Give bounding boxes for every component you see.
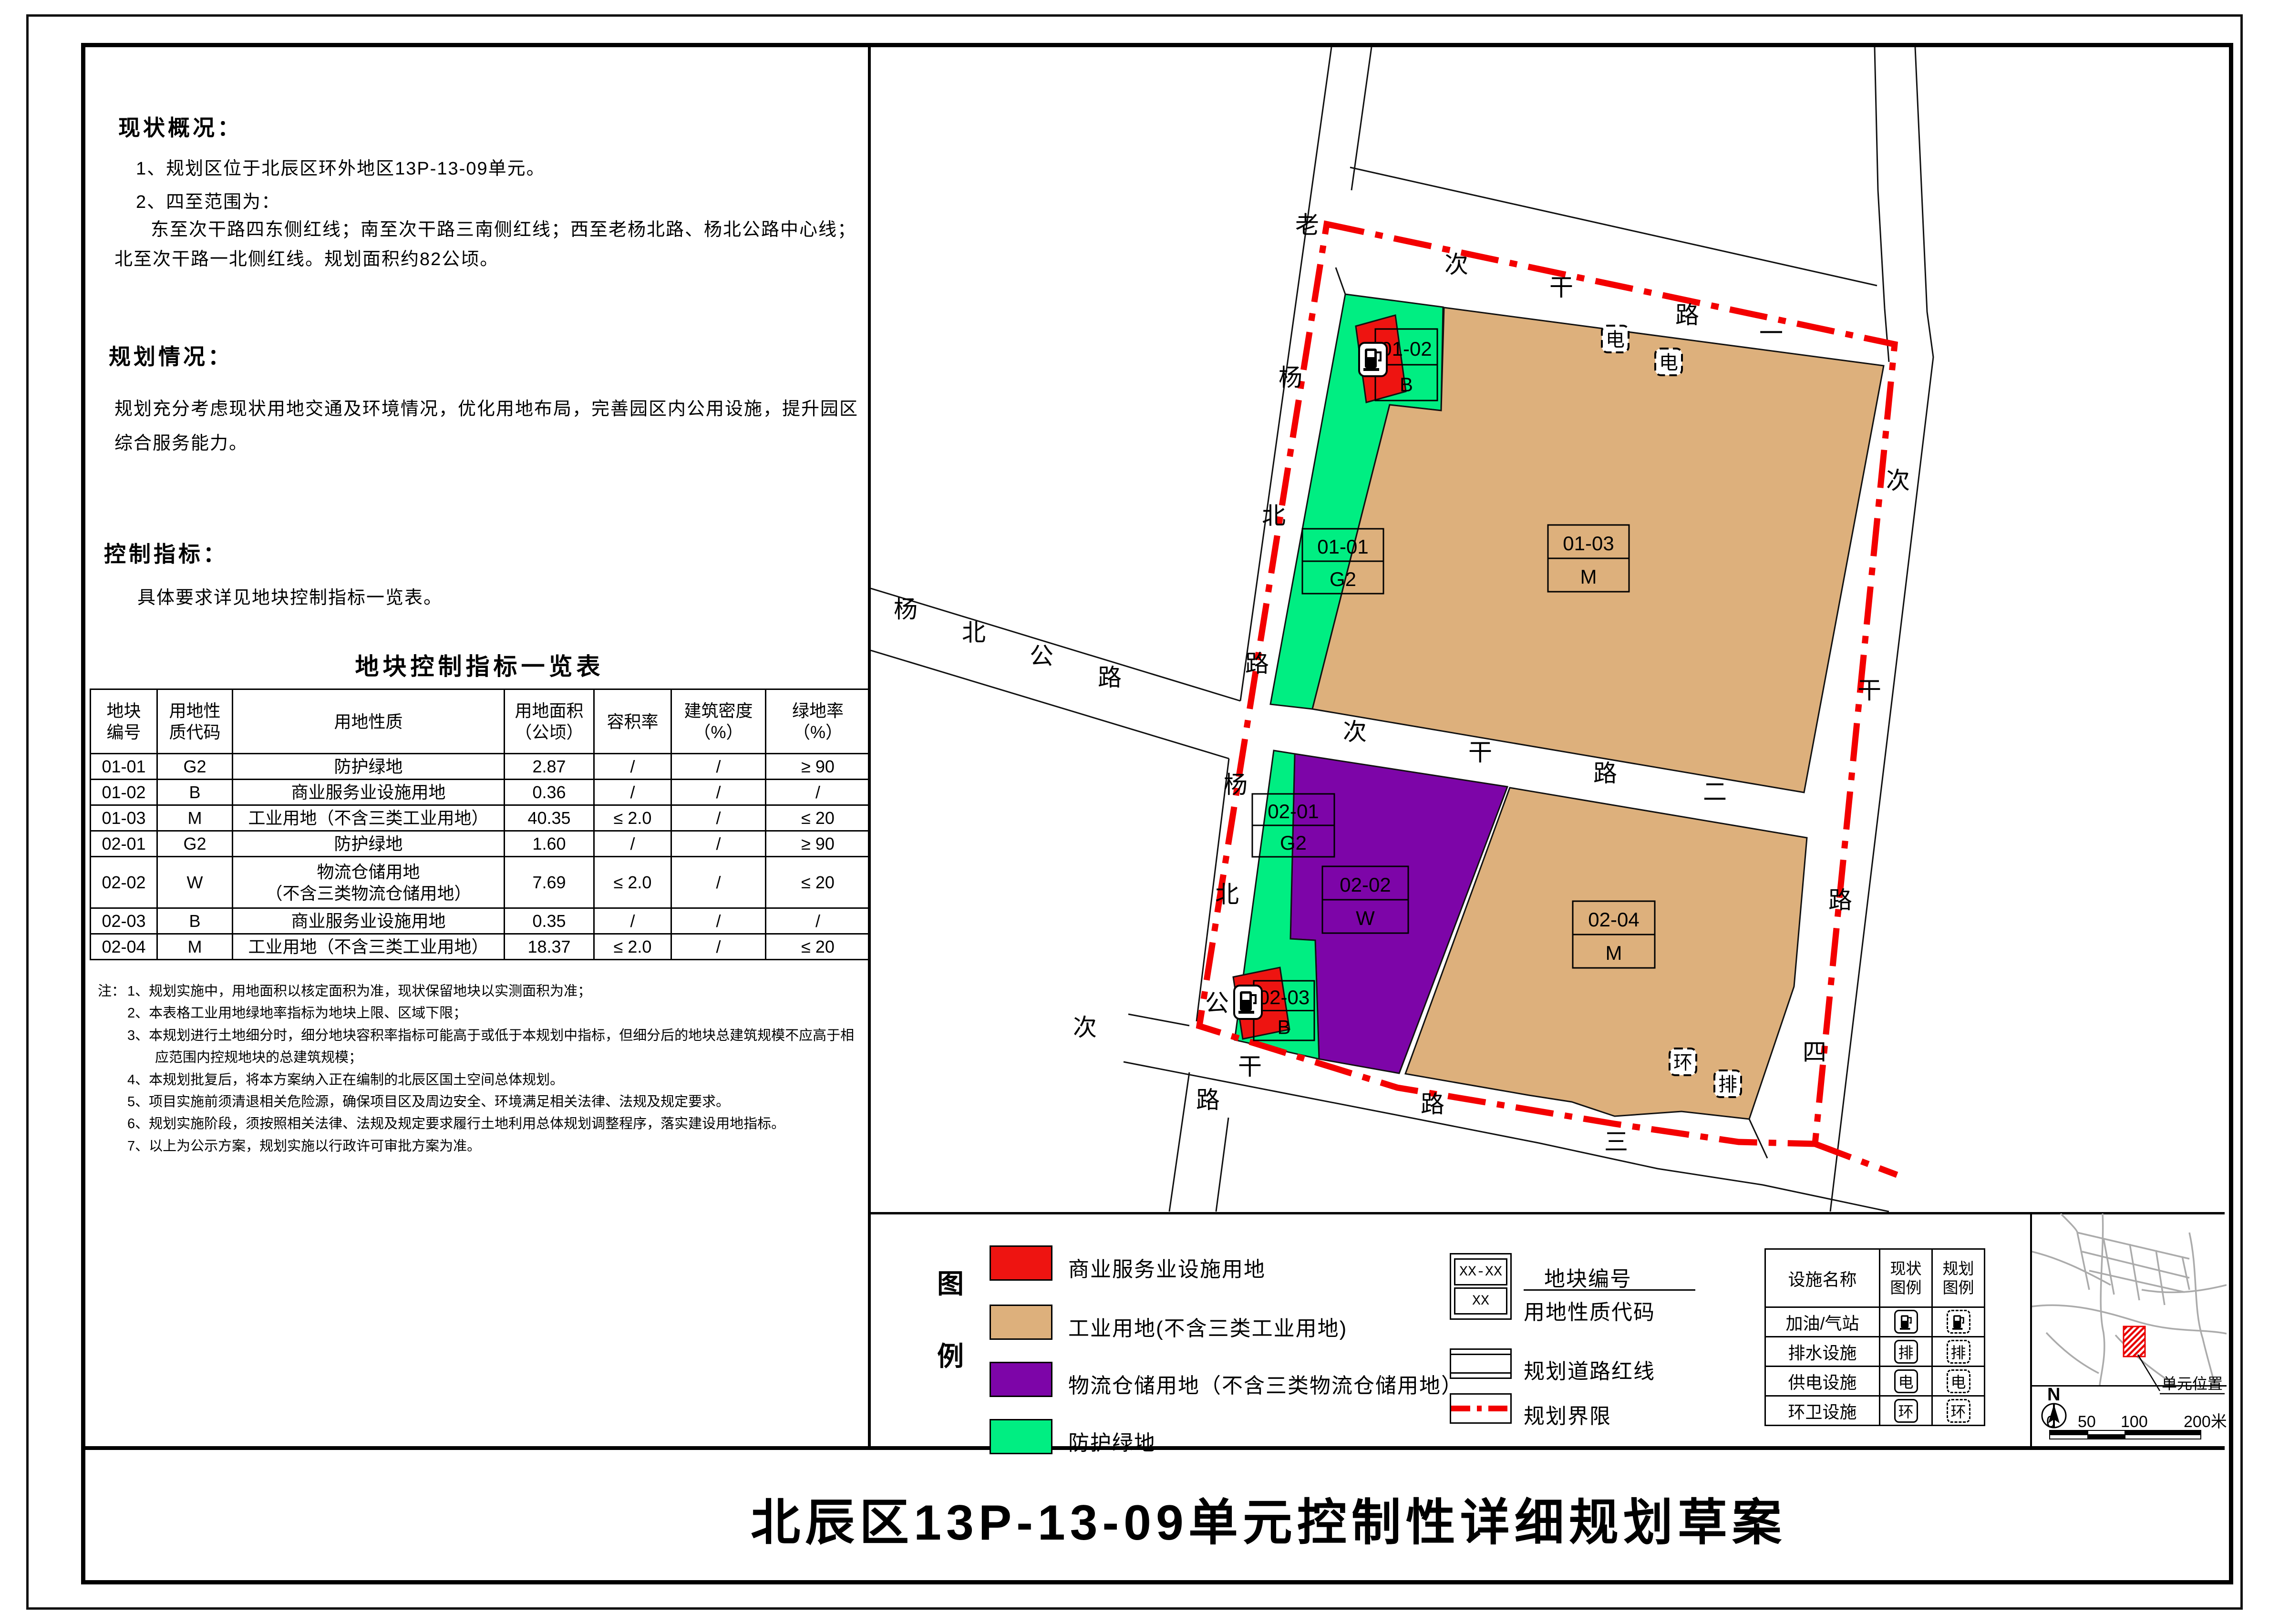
status-heading: 现状概况： <box>118 111 242 142</box>
scale-bar <box>2050 1430 2201 1439</box>
svg-text:M: M <box>1606 942 1622 964</box>
table-header-col6: 建筑密度 （%） <box>671 689 766 754</box>
svg-text:B: B <box>1277 1016 1290 1038</box>
status-item-2: 2、四至范围为： <box>136 187 280 213</box>
svg-text:M: M <box>1580 565 1597 588</box>
road-redline-swatch <box>1450 1348 1512 1379</box>
table-header-col7: 绿地率 （%） <box>766 689 870 754</box>
legend-swatch-green <box>990 1419 1052 1454</box>
svg-text:W: W <box>1356 907 1375 929</box>
table-row-01-02: 01-02B商业服务业设施用地0.36/// <box>91 780 870 805</box>
inset-svg: 单元位置 N 050100200米 <box>2032 1213 2227 1447</box>
road-name-yangbei_south-char3: 公 <box>1205 990 1229 1017</box>
road-name-road4-char1: 次 <box>1886 467 1910 494</box>
facility-电-icon-planned: 电 <box>1602 326 1629 352</box>
parcel-code-label: 地块编号 <box>1544 1262 1632 1292</box>
facility-电-icon-planned: 电 <box>1947 1369 1970 1393</box>
table-row-01-01: 01-01G2防护绿地2.87//≥ 90 <box>91 754 870 780</box>
notes-block: 注： 1、规划实施中，用地面积以核定面积为准，现状保留地块以实测面积为准；2、本… <box>98 980 866 1157</box>
road-name-road1-char4: 一 <box>1759 320 1783 347</box>
table-row-02-01: 02-01G2防护绿地1.60//≥ 90 <box>91 831 870 857</box>
road-name-yangbei_diag-char2: 北 <box>962 619 986 646</box>
road-name-laoyang-char3: 北 <box>1262 503 1286 529</box>
svg-text:G2: G2 <box>1280 832 1307 854</box>
sheet-title: 北辰区13P-13-09单元控制性详细规划草案 <box>751 1482 1786 1554</box>
road-name-road2-char3: 路 <box>1593 760 1617 787</box>
svg-text:环: 环 <box>1673 1052 1692 1073</box>
note-item-4: 4、本规划批复后，将本方案纳入正在编制的北辰区国土空间总体规划。 <box>127 1069 866 1091</box>
road-name-yangbei_south-char1: 杨 <box>1224 771 1248 798</box>
road-name-yangbei_diag-char3: 公 <box>1030 643 1053 669</box>
facilities-row: 排水设施排排 <box>1765 1337 1985 1367</box>
facility-排-icon-planned: 排 <box>1947 1340 1970 1364</box>
table-row-02-03: 02-03B商业服务业设施用地0.35/// <box>91 908 870 934</box>
fuel-pump-icon-existing <box>1359 343 1387 376</box>
boundary-swatch <box>1450 1393 1512 1424</box>
scale-bar-labels: 050100200米 <box>2046 1413 2227 1431</box>
legend-label-industrial: 工业用地(不含三类工业用地) <box>1068 1311 1347 1342</box>
facilities-header-2: 现状 图例 <box>1880 1249 1932 1307</box>
svg-text:01-01: 01-01 <box>1317 535 1368 558</box>
facility-排-icon-planned: 排 <box>1714 1070 1741 1097</box>
note-item-7: 7、以上为公示方案，规划实施以行政许可审批方案为准。 <box>127 1135 866 1157</box>
road-name-road3-char3: 路 <box>1421 1091 1444 1118</box>
table-row-01-03: 01-03M工业用地（不含三类工业用地）40.35≤ 2.0/≤ 20 <box>91 805 870 831</box>
road-name-yangbei_south-char4: 路 <box>1196 1087 1220 1113</box>
north-label: N <box>2047 1385 2060 1405</box>
facility-环-icon-planned: 环 <box>1947 1399 1970 1423</box>
table-header-col1: 地块 编号 <box>91 689 157 754</box>
road-redline-label: 规划道路红线 <box>1524 1354 1655 1385</box>
legend-title-char-2: 例 <box>937 1335 964 1374</box>
notes-prefix: 注： <box>98 980 125 1002</box>
road-name-road1-char2: 干 <box>1549 274 1573 301</box>
table-header-col3: 用地性质 <box>233 689 505 754</box>
svg-text:02-02: 02-02 <box>1340 874 1391 896</box>
plan-sheet: 现状概况： 1、规划区位于北辰区环外地区13P-13-09单元。 2、四至范围为… <box>0 0 2269 1624</box>
svg-text:02-01: 02-01 <box>1268 800 1319 822</box>
road-name-road3-char2: 干 <box>1238 1053 1262 1080</box>
planning-body: 规划充分考虑现状用地交通及环境情况，优化用地布局，完善园区内公用设施，提升园区综… <box>114 392 861 461</box>
use-code-label: 用地性质代码 <box>1524 1295 1655 1326</box>
road-name-laoyang-char1: 老 <box>1295 212 1319 238</box>
svg-text:B: B <box>1400 373 1413 396</box>
scale-tick-1: 50 <box>2078 1413 2096 1431</box>
road-name-road2-char2: 干 <box>1468 739 1492 766</box>
legend-swatch-industrial <box>990 1305 1052 1340</box>
planning-heading: 规划情况： <box>109 339 233 371</box>
table-header-col4: 用地面积 （公顷） <box>505 689 594 754</box>
status-item-3: 东至次干路四东侧红线；南至次干路三南侧红线；西至老杨北路、杨北公路中心线；北至次… <box>114 216 861 274</box>
road-name-road1-char1: 次 <box>1444 251 1468 278</box>
inset-location-map: 单元位置 N 050100200米 <box>2030 1213 2225 1447</box>
road-name-laoyang-char2: 杨 <box>1279 364 1302 391</box>
scale-tick-2: 100 <box>2121 1413 2148 1431</box>
svg-text:G2: G2 <box>1330 568 1356 590</box>
note-item-3: 3、本规划进行土地细分时，细分地块容积率指标可能高于或低于本规划中指标，但细分后… <box>127 1025 866 1069</box>
svg-text:电: 电 <box>1606 329 1625 350</box>
scale-tick-3: 200米 <box>2184 1413 2227 1431</box>
road-name-road1-char3: 路 <box>1675 302 1699 329</box>
facilities-row: 供电设施电电 <box>1765 1367 1985 1396</box>
road-name-road3-char4: 三 <box>1604 1129 1628 1155</box>
facilities-row: 加油/气站 <box>1765 1307 1985 1337</box>
legend-swatch-commercial <box>990 1245 1052 1281</box>
boundary-label: 规划界限 <box>1524 1399 1611 1429</box>
facility-电-icon-existing: 电 <box>1894 1369 1918 1393</box>
table-header-col2: 用地性 质代码 <box>157 689 233 754</box>
facilities-header-3: 规划 图例 <box>1932 1249 1985 1307</box>
inset-road-network <box>2032 1213 2227 1385</box>
road-name-road2-char1: 次 <box>1343 719 1367 745</box>
facility-环-icon-existing: 环 <box>1894 1399 1918 1423</box>
road-name-road3-char1: 次 <box>1073 1014 1097 1041</box>
facility-电-icon-planned: 电 <box>1655 349 1682 375</box>
road-name-yangbei_diag-char1: 杨 <box>894 596 918 623</box>
road-name-road4-char2: 干 <box>1857 677 1881 704</box>
road-name-road2-char4: 二 <box>1703 779 1727 805</box>
svg-text:01-02: 01-02 <box>1381 338 1432 360</box>
svg-text:02-04: 02-04 <box>1588 908 1639 931</box>
status-item-1: 1、规划区位于北辰区环外地区13P-13-09单元。 <box>136 154 546 180</box>
facilities-row: 环卫设施环环 <box>1765 1396 1985 1426</box>
note-item-5: 5、项目实施前须清退相关危险源，确保项目区及周边安全、环境满足相关法律、法规及规… <box>127 1091 866 1113</box>
facility-环-icon-planned: 环 <box>1670 1048 1696 1075</box>
note-item-6: 6、规划实施阶段，须按照相关法律、法规及规定要求履行土地利用总体规划调整程序，落… <box>127 1113 866 1135</box>
parcel-code-fraction-line <box>1524 1289 1695 1291</box>
legend-label-logistics: 物流仓储用地（不含三类物流仓储用地） <box>1068 1368 1463 1399</box>
fuel-pump-icon-existing <box>1894 1310 1918 1334</box>
parcel-shapes <box>1233 294 1884 1119</box>
inset-callout-label: 单元位置 <box>2162 1375 2223 1392</box>
road-name-road4-char4: 四 <box>1803 1039 1826 1066</box>
svg-text:02-03: 02-03 <box>1258 986 1310 1008</box>
inset-divider <box>2032 1385 2227 1387</box>
svg-text:电: 电 <box>1659 352 1678 373</box>
road-name-yangbei_south-char2: 北 <box>1215 881 1239 908</box>
road-name-yangbei_diag-char4: 路 <box>1098 664 1122 691</box>
note-item-2: 2、本表格工业用地绿地率指标为地块上限、区域下限； <box>127 1002 866 1024</box>
road-name-laoyang-char4: 路 <box>1245 650 1269 677</box>
fuel-pump-icon-existing <box>1234 986 1262 1019</box>
inset-unit-location-marker <box>2124 1326 2145 1357</box>
control-indicator-table: 地块 编号用地性 质代码用地性质用地面积 （公顷）容积率建筑密度 （%）绿地率 … <box>90 689 871 960</box>
control-table-title: 地块控制指标一览表 <box>90 648 869 682</box>
legend-label-green: 防护绿地 <box>1068 1426 1156 1456</box>
svg-text:排: 排 <box>1718 1074 1737 1095</box>
scale-tick-0: 0 <box>2046 1413 2055 1431</box>
note-item-1: 1、规划实施中，用地面积以核定面积为准，现状保留地块以实测面积为准； <box>127 980 866 1002</box>
facilities-header-1: 设施名称 <box>1765 1249 1880 1307</box>
legend-title-char-1: 图 <box>937 1263 964 1301</box>
table-row-02-04: 02-04M工业用地（不含三类工业用地）18.37≤ 2.0/≤ 20 <box>91 934 870 960</box>
legend-label-commercial: 商业服务业设施用地 <box>1068 1252 1266 1283</box>
fuel-pump-icon-planned <box>1947 1310 1970 1334</box>
parcel-code-sample: XX-XX XX <box>1450 1253 1512 1320</box>
road-name-road4-char3: 路 <box>1828 887 1852 914</box>
zoning-map: 次干路一次干路二次干路三次干路四老杨北路杨北公路杨北公路01-01G201-02… <box>871 47 2220 1212</box>
parcel-code-sample-bottom: XX <box>1454 1287 1507 1315</box>
svg-text:01-03: 01-03 <box>1563 532 1614 555</box>
control-heading: 控制指标： <box>104 537 228 568</box>
table-header-col5: 容积率 <box>594 689 671 754</box>
parcel-code-sample-top: XX-XX <box>1454 1258 1507 1285</box>
legend-swatch-logistics <box>990 1362 1052 1397</box>
control-body: 具体要求详见地块控制指标一览表。 <box>137 583 443 609</box>
facility-排-icon-existing: 排 <box>1894 1340 1918 1364</box>
map-legend-divider <box>868 1212 2225 1214</box>
facilities-legend-table: 设施名称现状 图例规划 图例加油/气站排水设施排排供电设施电电环卫设施环环 <box>1764 1248 1985 1426</box>
table-row-02-02: 02-02W物流仓储用地 （不含三类物流仓储用地）7.69≤ 2.0/≤ 20 <box>91 857 870 908</box>
